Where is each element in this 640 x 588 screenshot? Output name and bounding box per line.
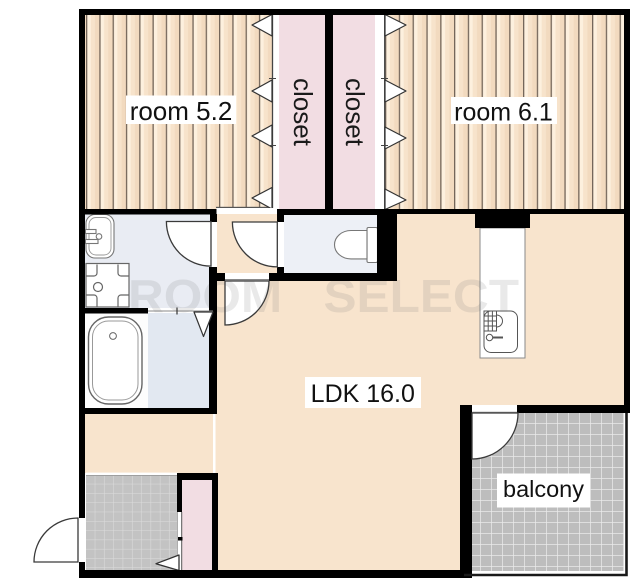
svg-text:balcony: balcony: [503, 476, 584, 502]
svg-text:closet: closet: [340, 78, 370, 147]
svg-text:closet: closet: [288, 78, 318, 147]
svg-text:room 6.1: room 6.1: [454, 99, 553, 127]
svg-text:LDK 16.0: LDK 16.0: [311, 380, 415, 408]
svg-text:room 5.2: room 5.2: [130, 96, 233, 126]
